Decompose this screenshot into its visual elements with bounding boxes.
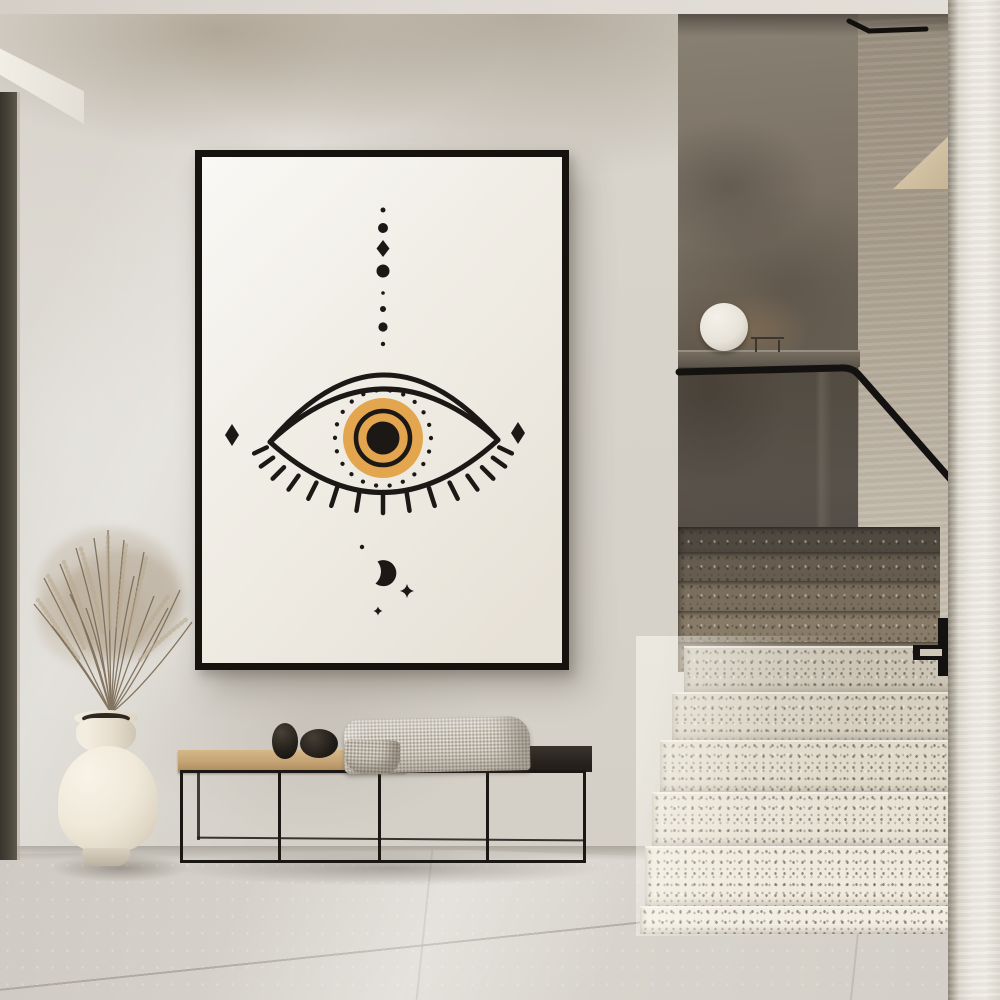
foreground-wall-edge	[948, 0, 1000, 1000]
decor-stone	[300, 729, 338, 758]
bench-frame-leg	[378, 772, 381, 861]
handrail	[679, 368, 952, 481]
stair-wedge	[893, 130, 955, 189]
small-dot-icon	[360, 545, 364, 549]
decor-stone	[272, 723, 298, 759]
throw-blanket-fold	[343, 739, 400, 775]
upper-handrail-icon	[849, 21, 926, 31]
hallway-scene	[0, 0, 1000, 1000]
poster-frame	[195, 150, 569, 670]
lamp-stand	[751, 338, 784, 352]
door-frame-highlight	[17, 92, 20, 860]
poster-art	[202, 157, 562, 663]
vase-body	[58, 746, 158, 852]
newel-bracket	[913, 618, 951, 676]
bench-frame-leg	[278, 772, 281, 861]
bench-frame-leg	[486, 772, 489, 861]
bench-back-leg	[197, 772, 200, 840]
vase-foot	[82, 848, 130, 866]
ceramic-vase	[56, 704, 160, 866]
pupil-icon	[367, 422, 400, 455]
door-frame-edge	[0, 92, 17, 860]
bench-frame	[180, 770, 586, 863]
